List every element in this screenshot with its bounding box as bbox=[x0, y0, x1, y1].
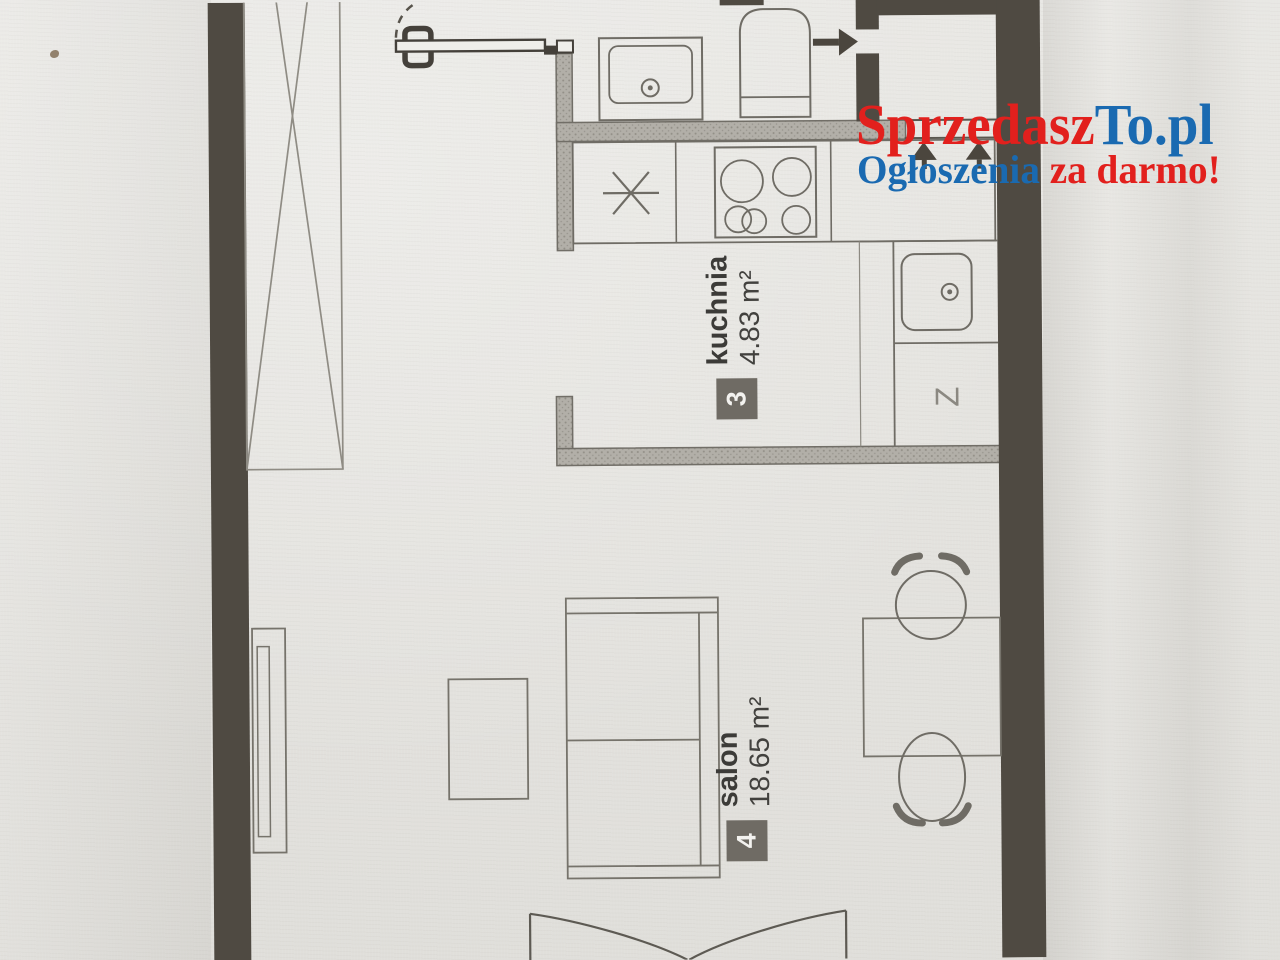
room-area: 4.83 m² bbox=[733, 256, 766, 366]
hall-kitchen-wall bbox=[556, 53, 573, 250]
kitchen-counter-column bbox=[859, 240, 998, 446]
stair-top-wall bbox=[877, 0, 997, 15]
entry-wall-upper bbox=[856, 0, 879, 29]
room-area: 18.65 m² bbox=[744, 697, 777, 808]
tall-appliance-icon bbox=[740, 9, 811, 117]
door-handle bbox=[405, 28, 431, 40]
wardrobe-icon bbox=[242, 0, 343, 470]
appliance-z-label: Z bbox=[928, 387, 966, 407]
kitchen-top-wall bbox=[557, 120, 906, 141]
room-number-badge: 3 bbox=[716, 378, 757, 419]
kitchen-salon-wall bbox=[557, 445, 1001, 465]
coffee-table-icon bbox=[448, 679, 528, 800]
door-frame-block bbox=[557, 40, 573, 52]
entrance-arrow-icon bbox=[813, 28, 858, 55]
room-number-badge: 4 bbox=[726, 820, 767, 861]
stove-icon bbox=[715, 147, 817, 238]
room-name: kuchnia bbox=[701, 256, 734, 366]
door-hinge bbox=[544, 46, 557, 55]
watermark-tagline: Ogłoszenia za darmo! bbox=[857, 146, 1221, 193]
chair-icon bbox=[896, 733, 969, 824]
kitchen-sink-icon bbox=[901, 254, 972, 330]
top-wall-stub bbox=[720, 0, 764, 5]
watermark-tagline-blue: Ogłoszenia bbox=[857, 147, 1050, 192]
tv-cabinet-icon bbox=[252, 628, 287, 852]
chair-icon bbox=[895, 556, 968, 640]
room-label-kuchnia: 3 kuchnia 4.83 m² bbox=[701, 244, 774, 419]
door-leaf bbox=[396, 40, 545, 52]
washing-machine-symbol bbox=[603, 172, 659, 214]
room-name: salon bbox=[712, 697, 745, 808]
entry-door-icon bbox=[396, 1, 573, 65]
shower-tray-icon bbox=[599, 38, 703, 121]
watermark-tagline-red: za darmo! bbox=[1050, 147, 1221, 192]
kitchen-wall-stub bbox=[556, 396, 572, 450]
balcony-door-icon bbox=[530, 911, 846, 960]
door-handle bbox=[405, 52, 431, 65]
floor-plan-photo: 3 kuchnia 4.83 m² 4 salon 18.65 m² Z Spr… bbox=[0, 0, 1280, 960]
room-label-salon: 4 salon 18.65 m² bbox=[711, 686, 784, 861]
sofa-icon bbox=[566, 597, 720, 878]
